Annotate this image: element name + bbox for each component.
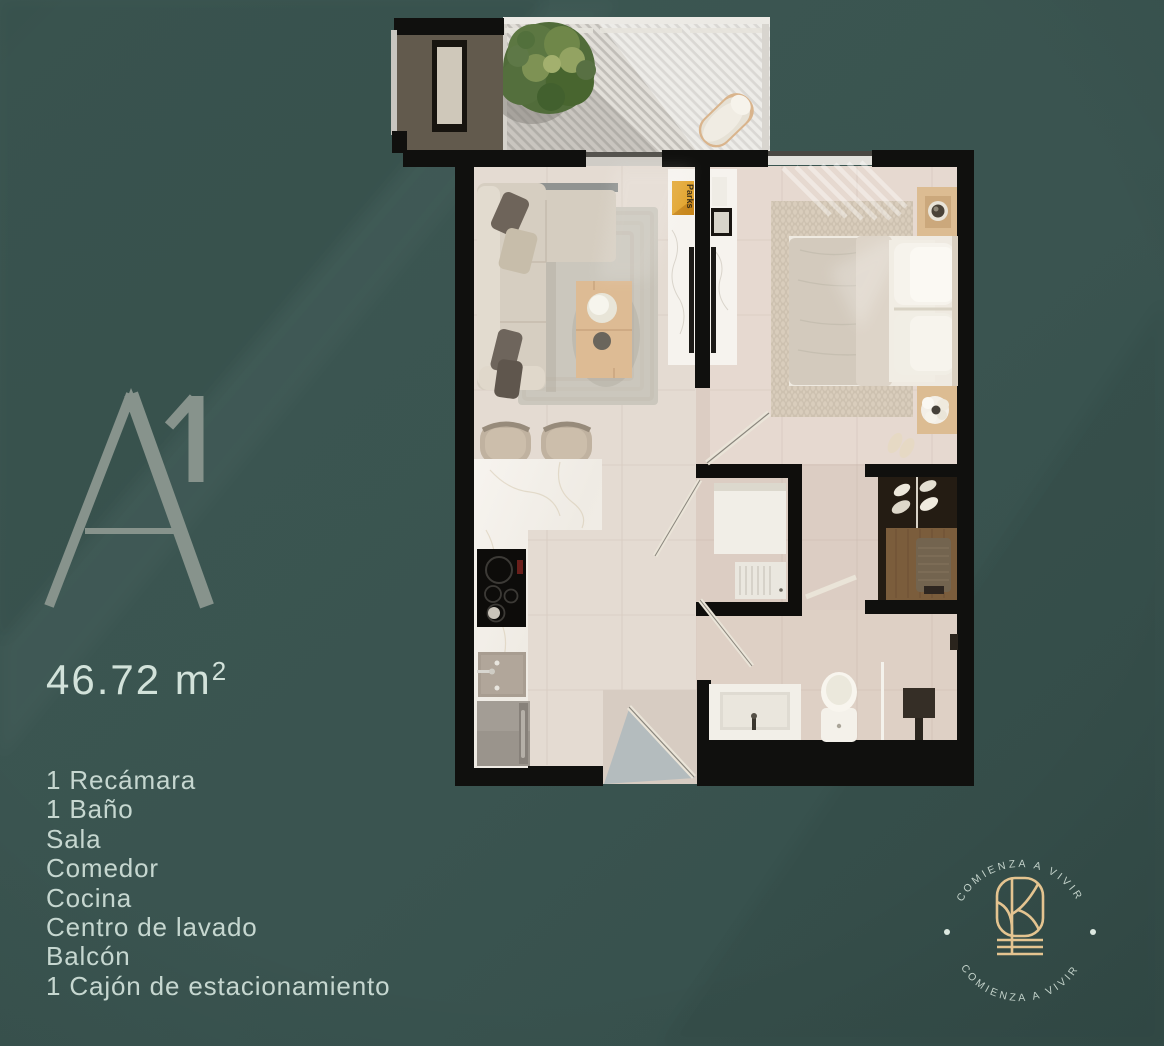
svg-text:COMIENZA A VIVIR: COMIENZA A VIVIR: [958, 962, 1082, 1004]
svg-text:Parks: Parks: [685, 184, 695, 209]
svg-text:COMIENZA A VIVIR: COMIENZA A VIVIR: [954, 858, 1085, 904]
